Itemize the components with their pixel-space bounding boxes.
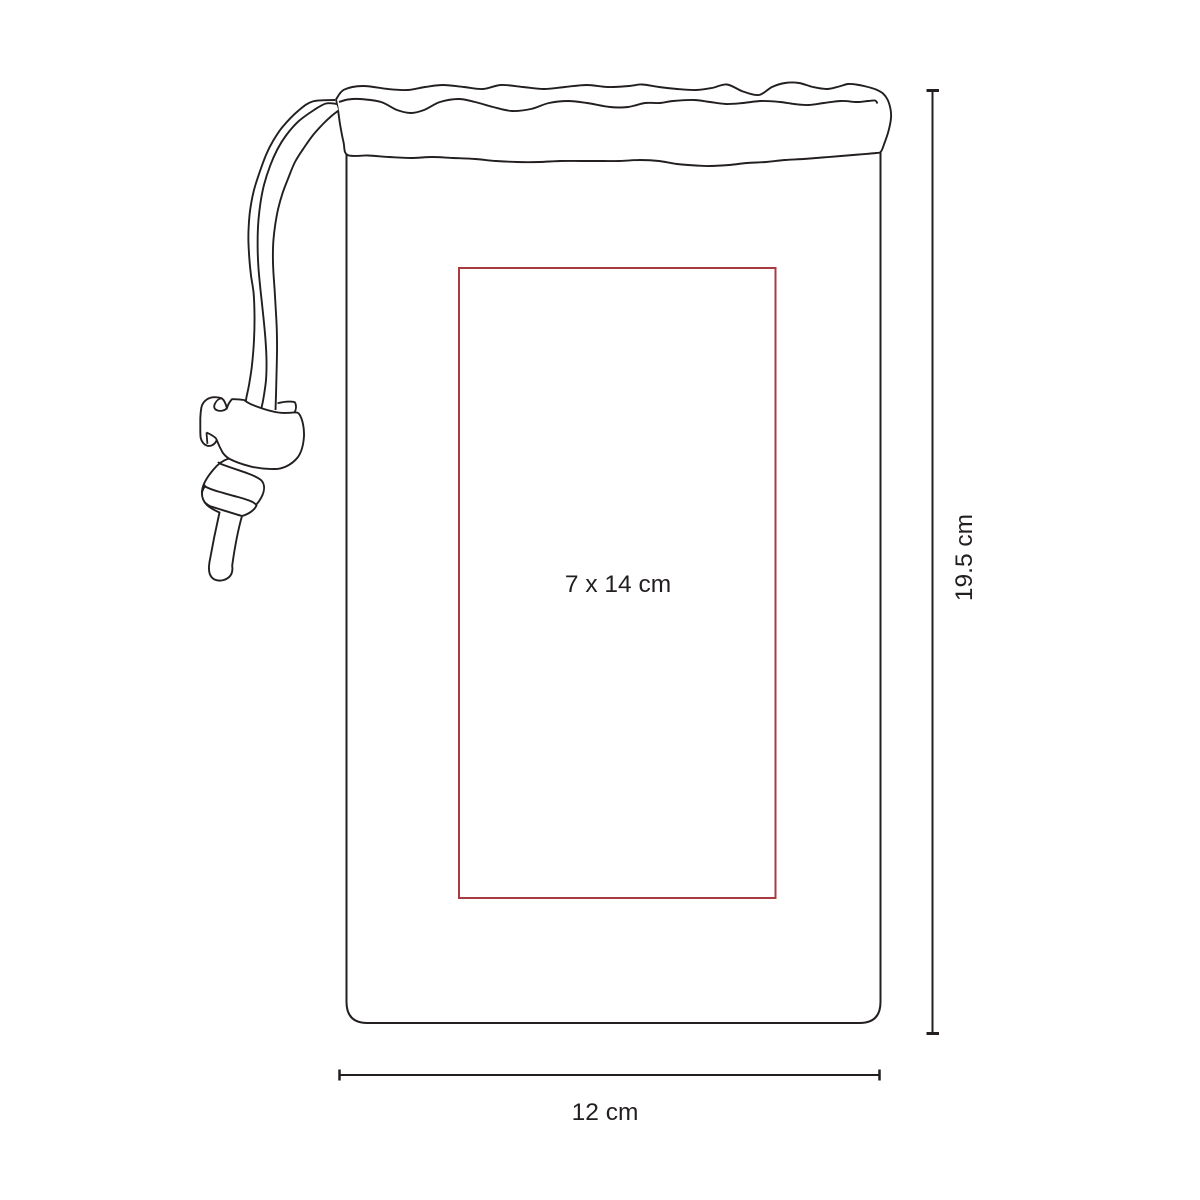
svg-text:19.5 cm: 19.5 cm	[951, 514, 978, 601]
svg-text:7 x 14 cm: 7 x 14 cm	[565, 571, 671, 598]
svg-text:12 cm: 12 cm	[572, 1099, 639, 1126]
